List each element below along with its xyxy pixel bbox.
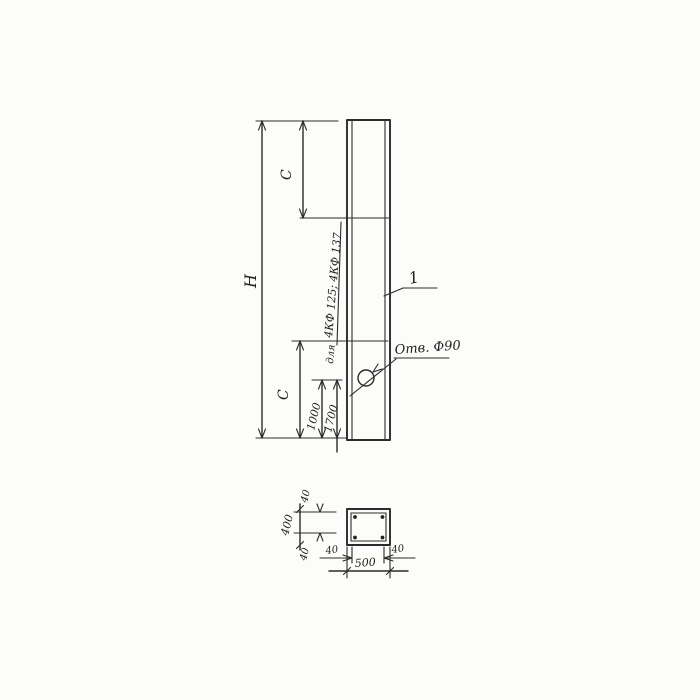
dim-1700-label: 1700 xyxy=(321,403,340,433)
rebar-dot xyxy=(353,536,357,540)
column-elevation xyxy=(292,120,390,440)
cover-left-label: 40 xyxy=(324,544,340,557)
cover-right-label: 40 xyxy=(390,543,406,556)
dim-1700: 1700 xyxy=(321,380,340,452)
section-outline xyxy=(347,509,390,545)
scanned-technical-drawing: H C C 1000 1700 xyxy=(0,0,700,700)
type-note: для 4КФ 125; 4КФ 137 xyxy=(322,222,344,364)
cover-top-label: 40 xyxy=(299,488,313,505)
rebar-dot xyxy=(381,536,385,540)
arrow-down-icon xyxy=(317,504,323,512)
h-dimension: H xyxy=(241,121,266,438)
rebar-dots xyxy=(353,515,384,539)
drawing-canvas: H C C 1000 1700 xyxy=(0,0,700,700)
section-view xyxy=(347,509,390,545)
note-prefix-label: для xyxy=(325,344,338,364)
item-callout: 1 xyxy=(384,267,437,296)
c-bottom-dimension-label: C xyxy=(276,389,292,400)
dim-1000-label: 1000 xyxy=(304,401,323,431)
column-inner-lines xyxy=(352,121,385,439)
c-top-dimension-label: C xyxy=(279,169,295,180)
rebar-dot xyxy=(353,515,357,519)
hole-callout: Отв. Ф90 xyxy=(350,338,461,396)
h-dimension-label: H xyxy=(241,273,260,289)
cover-bottom-label: 40 xyxy=(298,546,312,563)
hole-label: Отв. Ф90 xyxy=(394,338,461,358)
section-width-dimensions: 40 40 500 xyxy=(320,543,415,578)
item-number-label: 1 xyxy=(407,267,421,288)
arrow-up-icon xyxy=(317,533,323,541)
rebar-dot xyxy=(381,515,385,519)
c-bottom-dimension: C xyxy=(276,341,304,438)
note-types-label: 4КФ 125; 4КФ 137 xyxy=(322,232,344,339)
column-outline xyxy=(347,120,390,440)
c-top-dimension: C xyxy=(279,121,307,218)
item-leader-line xyxy=(384,288,437,296)
section-height-label: 400 xyxy=(278,513,296,537)
section-width-label: 500 xyxy=(354,556,376,570)
